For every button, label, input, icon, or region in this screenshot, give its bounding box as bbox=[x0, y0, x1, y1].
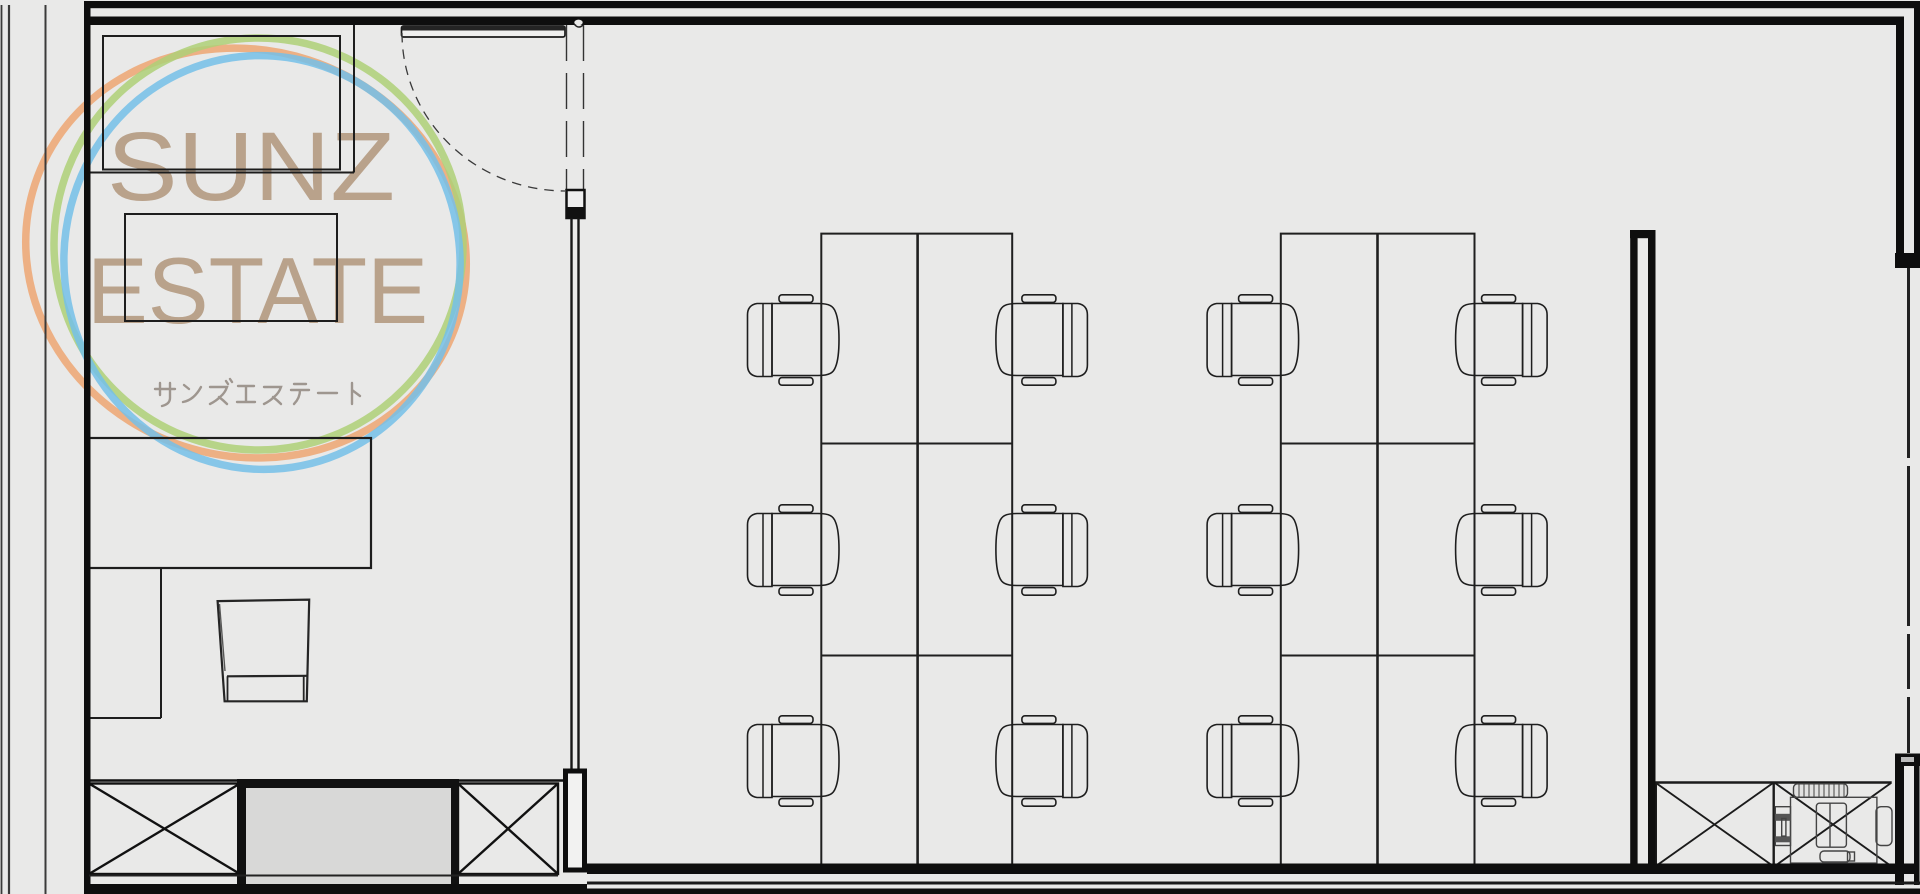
svg-text:SUNZ: SUNZ bbox=[107, 112, 395, 221]
svg-text:ESTATE: ESTATE bbox=[87, 238, 428, 343]
